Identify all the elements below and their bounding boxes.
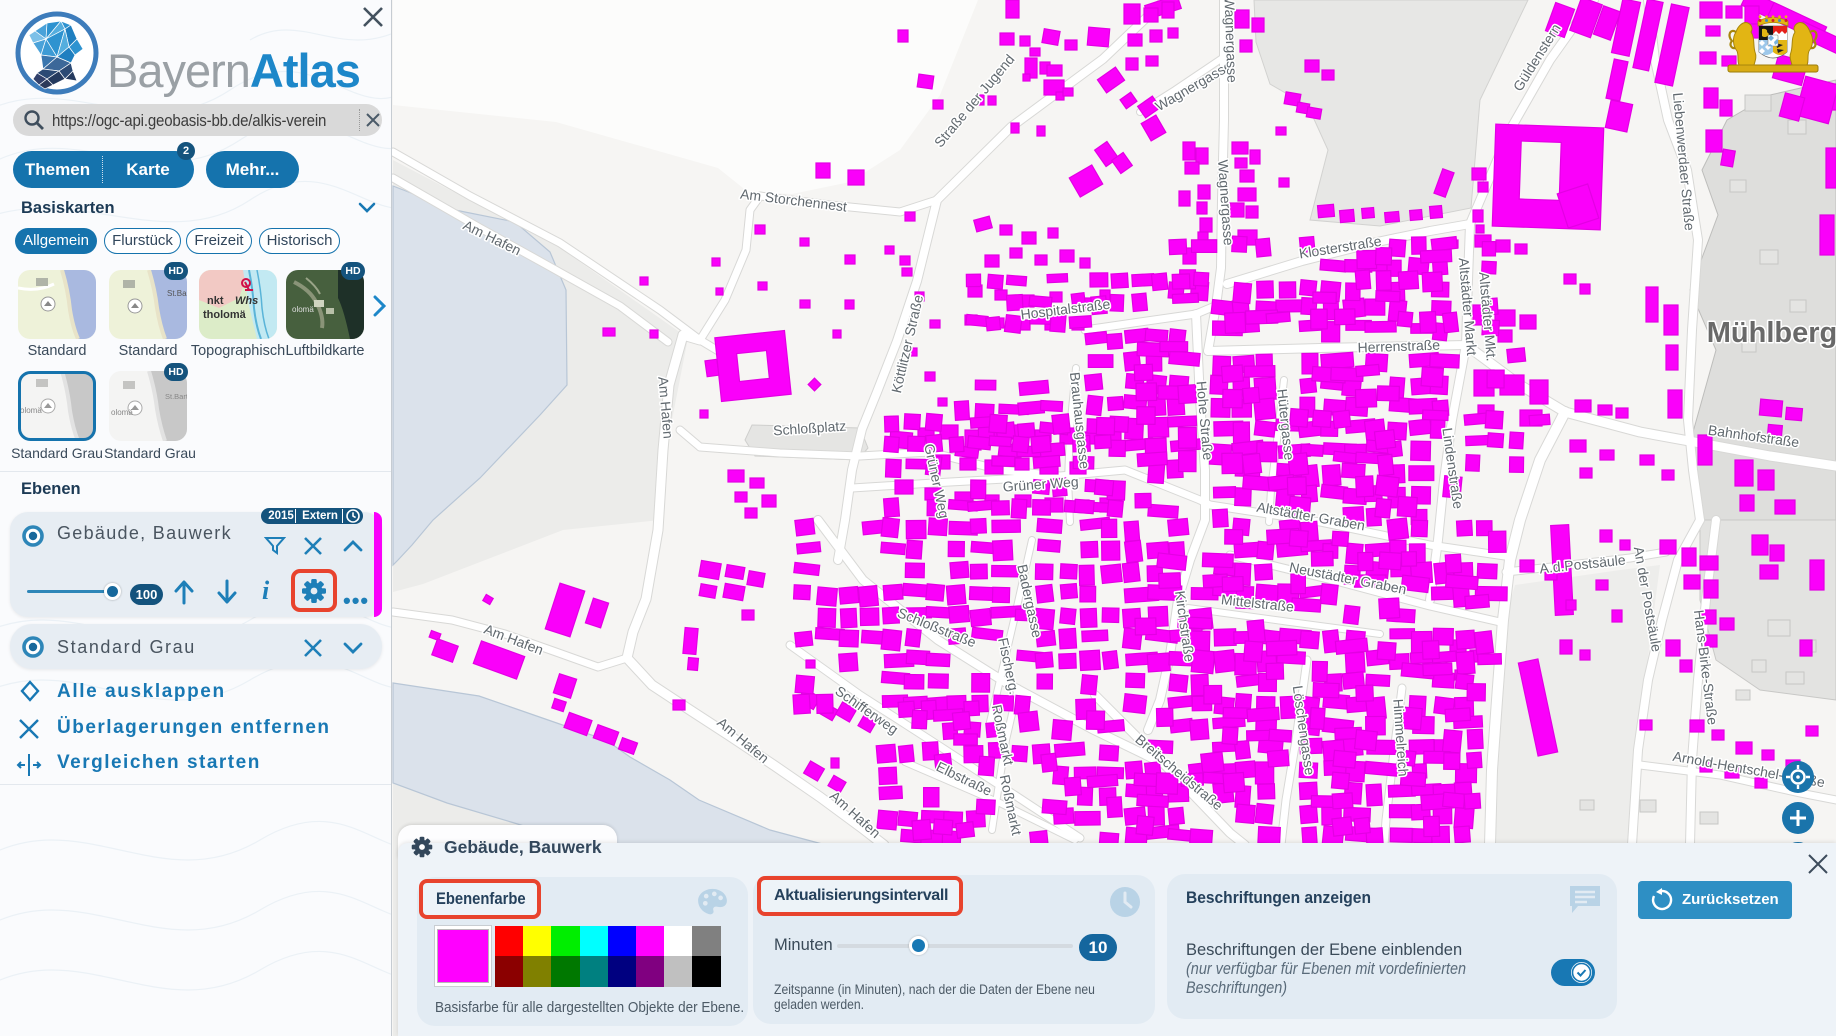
svg-text:olomä: olomä xyxy=(292,305,314,314)
svg-text:Mühlberg: Mühlberg xyxy=(1707,317,1836,349)
svg-text:St.Barth: St.Barth xyxy=(165,392,187,401)
svg-text:Herrenstraße: Herrenstraße xyxy=(1357,337,1440,356)
svg-text:tholomä: tholomä xyxy=(203,309,247,321)
svg-text:nkt: nkt xyxy=(207,295,224,307)
svg-text:olomä: olomä xyxy=(111,408,133,417)
svg-text:Whs: Whs xyxy=(235,295,258,307)
svg-text:Wagnergasse: Wagnergasse xyxy=(1222,0,1241,83)
svg-text:olomä: olomä xyxy=(20,406,42,415)
svg-text:St.Barth: St.Barth xyxy=(167,289,187,298)
